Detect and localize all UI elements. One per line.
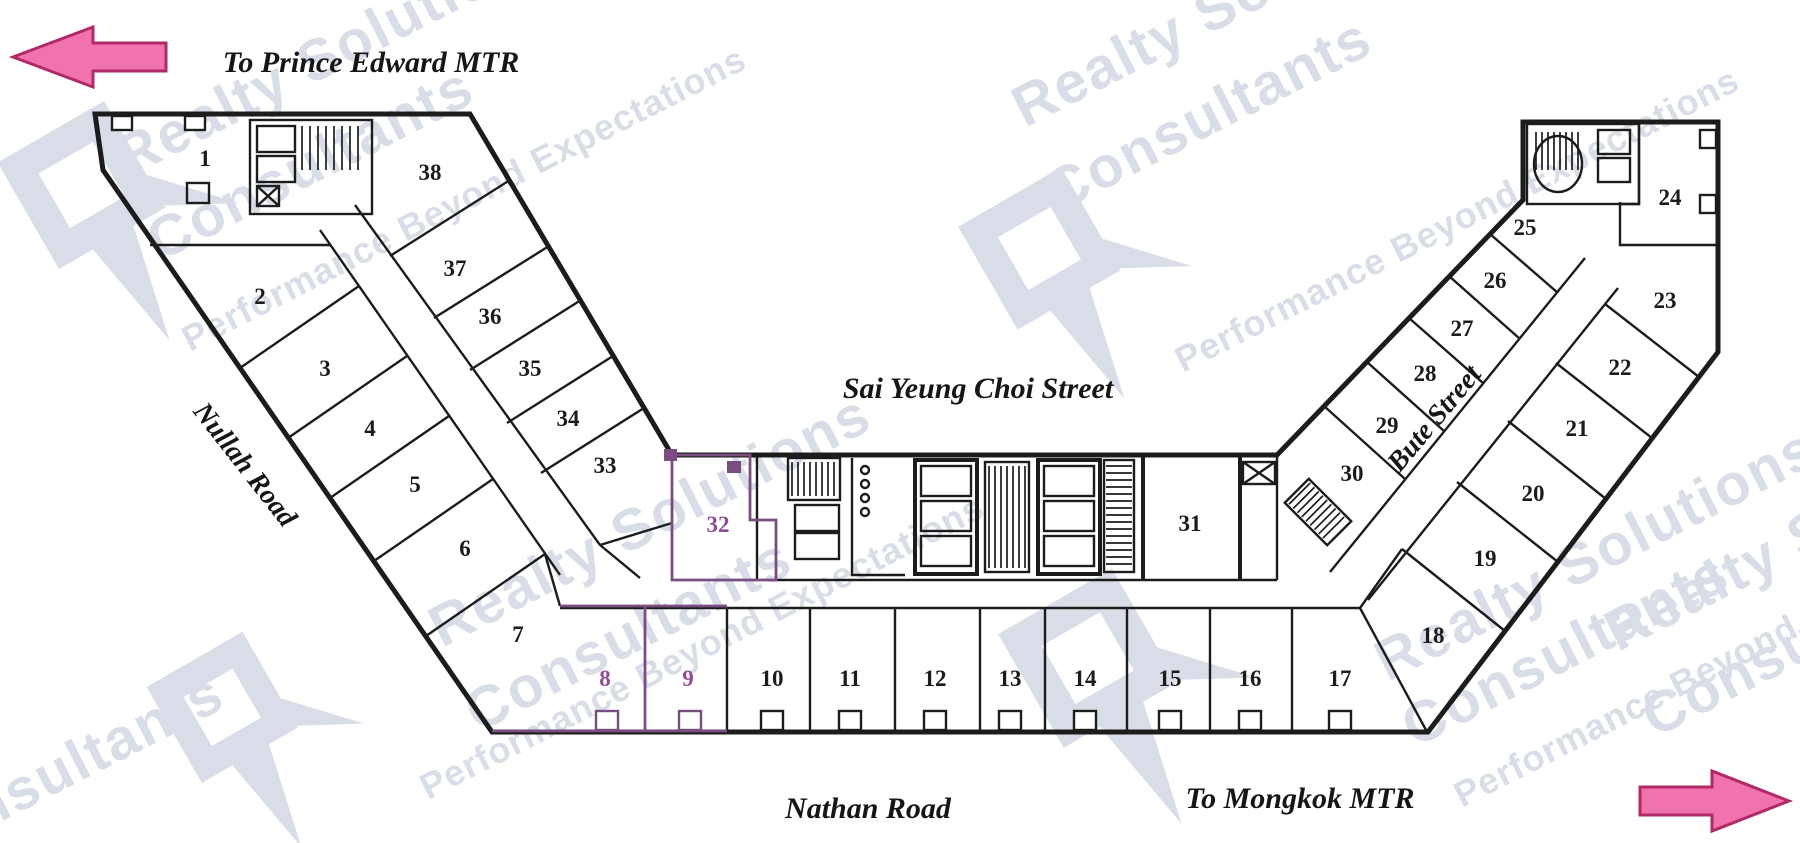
unit-10-label: 10 (761, 666, 784, 691)
unit-17-label: 17 (1329, 666, 1352, 691)
unit-30-label: 30 (1341, 461, 1364, 486)
unit-1-label: 1 (199, 146, 211, 171)
direction-mongkok-label: To Mongkok MTR (1186, 782, 1415, 815)
unit-38-label: 38 (419, 160, 442, 185)
unit-25-label: 25 (1514, 215, 1537, 240)
stair-core-right-wing (1285, 479, 1351, 545)
shop-door-markers (596, 711, 1351, 730)
unit-34-label: 34 (557, 406, 581, 431)
unit-2-label: 2 (254, 284, 266, 309)
unit-8-label: 8 (599, 666, 611, 691)
floor-plan-page: Realty Solutions Consultants Performance… (0, 0, 1800, 843)
unit-18-label: 18 (1422, 623, 1445, 648)
unit-15-label: 15 (1159, 666, 1182, 691)
unit-28-label: 28 (1414, 361, 1437, 386)
unit-6-label: 6 (459, 536, 471, 561)
unit-9-label: 9 (682, 666, 694, 691)
street-nathan-road-label: Nathan Road (784, 792, 952, 825)
unit-21-label: 21 (1566, 416, 1589, 441)
unit-31-label: 31 (1179, 511, 1202, 536)
unit-24-label: 24 (1659, 185, 1683, 210)
direction-prince-edward-label: To Prince Edward MTR (223, 46, 519, 79)
unit-19-label: 19 (1474, 546, 1497, 571)
door-marker (1700, 130, 1716, 148)
elevator-bank (1038, 460, 1100, 574)
arrow-left-icon (13, 27, 166, 87)
unit-20-label: 20 (1522, 481, 1545, 506)
unit-12-label: 12 (924, 666, 947, 691)
unit-22-label: 22 (1609, 355, 1632, 380)
arrow-right-icon (1640, 771, 1789, 831)
door-marker (1700, 195, 1716, 213)
unit-27-label: 27 (1451, 316, 1474, 341)
unit-35-label: 35 (519, 356, 542, 381)
unit-7-label: 7 (512, 622, 524, 647)
door-marker (185, 116, 205, 130)
unit-33-label: 33 (594, 453, 617, 478)
unit-13-label: 13 (999, 666, 1022, 691)
unit-16-label: 16 (1239, 666, 1262, 691)
unit-3-label: 3 (319, 356, 331, 381)
watermark-tagline: Performance Beyond Expectations (413, 486, 990, 807)
unit-14-label: 14 (1074, 666, 1098, 691)
floor-plan-svg: Realty Solutions Consultants Performance… (0, 0, 1800, 843)
unit-32-label: 32 (707, 512, 730, 537)
street-sai-yeung-choi-label: Sai Yeung Choi Street (843, 372, 1115, 405)
unit-36-label: 36 (479, 304, 502, 329)
unit-37-label: 37 (444, 256, 467, 281)
unit-29-label: 29 (1376, 413, 1399, 438)
unit-4-label: 4 (364, 416, 376, 441)
unit-26-label: 26 (1484, 268, 1507, 293)
street-nullah-road-label: Nullah Road (186, 396, 303, 534)
unit-5-label: 5 (409, 472, 421, 497)
unit-11-label: 11 (839, 666, 861, 691)
unit-23-label: 23 (1654, 288, 1677, 313)
door-marker (112, 116, 132, 130)
